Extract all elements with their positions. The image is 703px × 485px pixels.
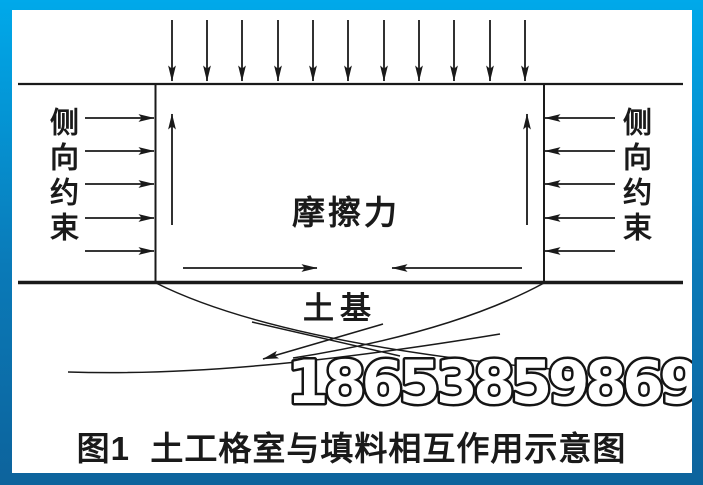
figure-page: 18653859869 侧向约束 侧向约束 摩擦力 土基 图1 土工格室与填料相… (0, 0, 703, 485)
subgrade-label: 土基 (303, 293, 377, 326)
geocell-diagram: 18653859869 (12, 10, 692, 473)
figure-canvas: 18653859869 侧向约束 侧向约束 摩擦力 土基 图1 土工格室与填料相… (12, 10, 692, 473)
internal-friction-arrows-icon (172, 114, 527, 268)
friction-label: 摩擦力 (292, 196, 400, 231)
right-constraint-label: 侧向约束 (619, 107, 649, 247)
watermark-number: 18653859869 (287, 348, 692, 418)
figure-caption: 图1 土工格室与填料相互作用示意图 (12, 432, 692, 467)
diagram-stage: 18653859869 侧向约束 侧向约束 摩擦力 土基 图1 土工格室与填料相… (12, 10, 692, 473)
left-constraint-label: 侧向约束 (46, 107, 76, 247)
load-arrows-icon (172, 20, 525, 81)
left-lateral-arrows-icon (85, 118, 154, 251)
right-lateral-arrows-icon (545, 118, 615, 251)
